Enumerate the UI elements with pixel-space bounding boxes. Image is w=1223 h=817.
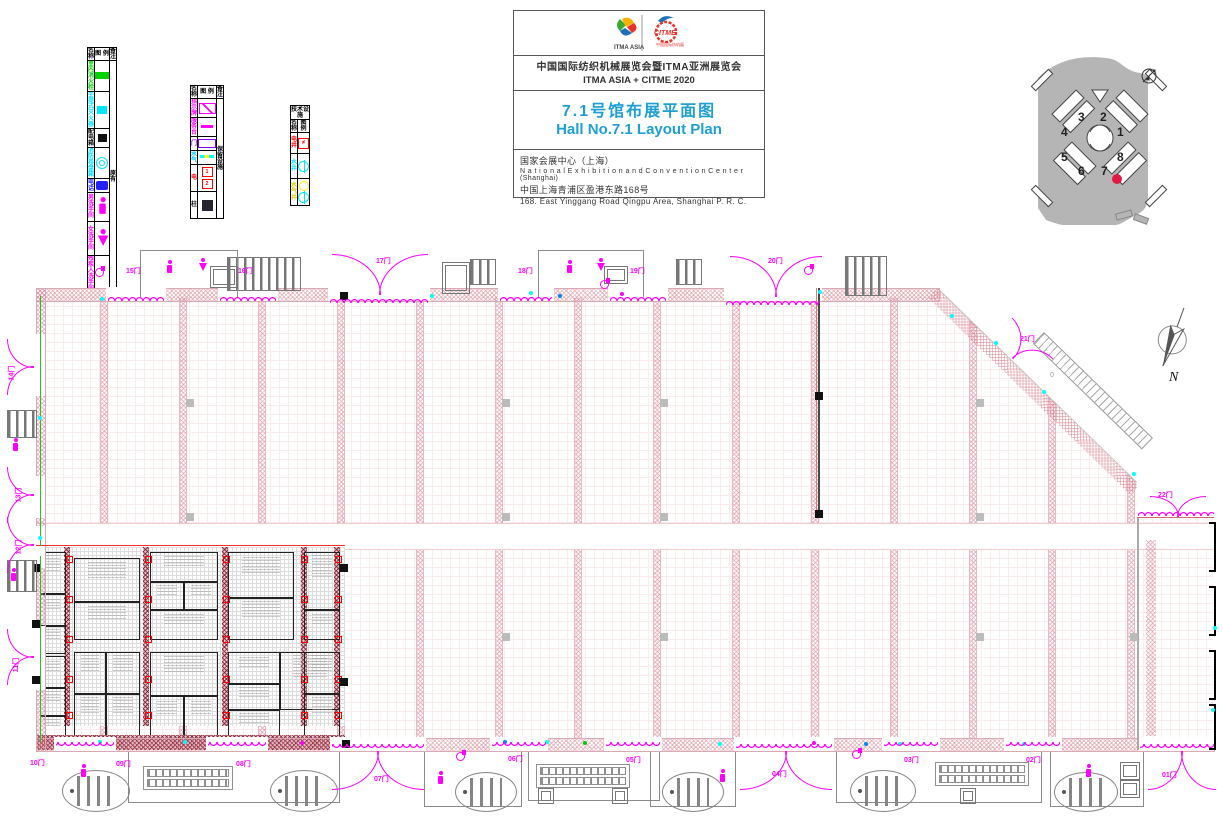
power-marker: [335, 712, 342, 719]
door-leaf-row: [500, 294, 552, 301]
plan-line: [816, 288, 817, 518]
gate-label: 18门: [518, 266, 533, 276]
utility-dot: [718, 742, 722, 746]
door-arc-right: [332, 751, 379, 790]
door-leaf-row: [1006, 742, 1060, 749]
service-trench: [732, 298, 740, 738]
revolving-stair: [662, 772, 724, 812]
annex-trench-strip: [1146, 540, 1156, 736]
door-leaf-row: [736, 744, 832, 751]
power-marker: [335, 596, 342, 603]
gate-label: 14门: [6, 366, 16, 381]
booth-outline: [74, 652, 106, 694]
elevator: [1120, 780, 1140, 798]
utility-dot: [864, 742, 868, 746]
booth-outline: [228, 598, 294, 640]
door-arc-right: [7, 339, 34, 368]
utility-dot: [1211, 708, 1215, 712]
accessible-restroom-icon: [852, 748, 862, 759]
service-trench: [1127, 298, 1135, 738]
service-trench: [416, 298, 424, 738]
door-arc-left: [785, 751, 832, 790]
power-marker: [145, 676, 152, 683]
revolving-stair: [270, 770, 338, 812]
staircase: [676, 259, 702, 285]
ramp-marker: 0: [1050, 372, 1054, 379]
booth-outline: [74, 602, 140, 640]
structural-column: [660, 399, 668, 407]
door-leaf-row: [726, 298, 820, 305]
power-marker: [145, 596, 152, 603]
gate-label: 05门: [626, 755, 641, 765]
power-marker: [223, 676, 230, 683]
power-marker: [145, 556, 152, 563]
floor-plan: 0 15门16门17门18门19门20门21门22门10门09门08门07门06…: [0, 0, 1223, 817]
door-arc-left: [1181, 751, 1216, 790]
power-marker: [301, 596, 308, 603]
gate-label: 19门: [630, 266, 645, 276]
utility-dot: [38, 536, 42, 540]
power-marker: [145, 636, 152, 643]
power-marker: [66, 676, 73, 683]
revolving-stair: [455, 772, 517, 812]
mens-restroom-icon: [566, 260, 573, 273]
booth-outline: [106, 694, 140, 736]
door-arc-left: [332, 254, 381, 295]
power-marker: [335, 636, 342, 643]
power-marker: [223, 596, 230, 603]
utility-dot: [1213, 626, 1217, 630]
structural-column: [502, 513, 510, 521]
wall-jamb: [815, 510, 823, 518]
gate-label: 09门: [116, 759, 131, 769]
booth-outline: [184, 696, 218, 736]
structural-column: [502, 633, 510, 641]
power-marker: [223, 556, 230, 563]
door-leaf-row: [884, 742, 938, 749]
revolving-stair: [850, 770, 916, 812]
door-leaf-row: [208, 742, 266, 749]
power-marker: [223, 636, 230, 643]
power-marker: [66, 636, 73, 643]
elevator: [210, 266, 238, 288]
utility-dot: [583, 741, 587, 745]
door-swing-arcs: [332, 752, 424, 790]
door-leaf-row: [108, 294, 164, 301]
layout-plan-page: 名 称图 例备 注室内消火栓原 有手提式灭火器配电箱消防卷盘箱电话男洗手间女洗手…: [0, 0, 1223, 817]
gate-label: 21门: [1020, 334, 1035, 344]
right-wall-segment: [1209, 650, 1216, 700]
structural-column: [976, 633, 984, 641]
gate-label: 11门: [11, 658, 21, 672]
escalator: [935, 762, 1029, 786]
gate-label: 03门: [904, 755, 919, 765]
plan-line: [1137, 517, 1214, 518]
gate-label: 08门: [236, 759, 251, 769]
elevator: [960, 788, 976, 804]
power-marker: [301, 556, 308, 563]
wall-jamb: [340, 564, 348, 572]
door-swing-arcs: [1148, 752, 1216, 790]
wall-jamb: [340, 678, 348, 686]
booth-outline: [184, 582, 218, 610]
revolving-stair: [1054, 772, 1118, 812]
door-leaf-row: [606, 742, 660, 749]
structural-column: [1130, 633, 1138, 641]
elevator: [538, 788, 554, 804]
mens-restroom-icon: [166, 260, 173, 273]
power-marker: [223, 712, 230, 719]
booth-block: [36, 547, 345, 726]
utility-dot: [950, 314, 954, 318]
door-leaf-row: [610, 294, 666, 301]
power-marker: [145, 712, 152, 719]
elevator: [442, 262, 470, 294]
structural-column: [660, 633, 668, 641]
utility-dot: [1132, 472, 1136, 476]
mens-restroom-icon: [437, 771, 444, 784]
accessible-restroom-icon: [456, 750, 466, 761]
power-marker: [301, 712, 308, 719]
utility-dot: [1042, 390, 1046, 394]
power-marker: [301, 676, 308, 683]
gate-label: 20门: [768, 256, 783, 266]
booth-outline: [150, 610, 218, 640]
gate-label: 06门: [508, 754, 523, 764]
gate-label: 02门: [1026, 755, 1041, 765]
north-compass: N: [1145, 298, 1205, 390]
gate-label: 10门: [30, 758, 45, 768]
power-marker: [66, 712, 73, 719]
gate-label: 12门: [13, 540, 23, 555]
gate-label: 13门: [13, 488, 23, 503]
mens-restroom-icon: [719, 769, 726, 782]
womens-restroom-icon: [199, 258, 206, 271]
escalator: [536, 764, 630, 788]
door-arc-right: [1177, 496, 1206, 517]
door-leaf-row: [56, 742, 114, 749]
structural-column: [976, 399, 984, 407]
elevator: [612, 788, 628, 804]
door-arc-left: [377, 751, 424, 790]
north-label: N: [1169, 370, 1178, 386]
plan-line: [818, 288, 820, 518]
wall-jamb: [815, 392, 823, 400]
door-arc-right: [7, 629, 34, 658]
booth-outline: [150, 652, 218, 696]
staircase: [7, 410, 37, 438]
door-leaf-row: [330, 296, 428, 303]
escalator: [143, 766, 233, 790]
service-trench: [890, 298, 898, 738]
wall-jamb: [32, 620, 40, 628]
gate-label: 17门: [376, 256, 391, 266]
staircase: [845, 256, 887, 296]
booth-outline: [228, 710, 280, 736]
mens-restroom-icon: [80, 764, 87, 777]
booth-outline: [150, 582, 184, 610]
power-marker: [301, 636, 308, 643]
structural-column: [660, 513, 668, 521]
structural-column: [976, 513, 984, 521]
plan-line: [40, 556, 41, 742]
power-marker: [335, 556, 342, 563]
structural-column: [502, 399, 510, 407]
service-trench: [574, 298, 582, 738]
power-marker: [66, 596, 73, 603]
staircase: [470, 259, 496, 285]
booth-outline: [74, 694, 106, 736]
elevator: [1120, 762, 1140, 780]
booth-outline: [304, 652, 340, 694]
diagonal-wall-hatch: [928, 288, 1140, 495]
door-leaf-row: [332, 744, 424, 751]
womens-restroom-icon: [597, 258, 604, 271]
booth-outline: [228, 684, 280, 710]
power-marker: [66, 556, 73, 563]
gate-label: 22门: [1158, 490, 1173, 500]
right-wall-segment: [1209, 522, 1216, 572]
door-leaf-row: [492, 742, 546, 749]
plan-line: [40, 296, 41, 546]
lobby-outline: [538, 250, 644, 297]
revolving-stair: [62, 770, 130, 812]
booth-outline: [150, 696, 184, 736]
structural-column: [186, 513, 194, 521]
booth-outline: [228, 652, 280, 684]
door-leaf-row: [220, 294, 276, 301]
gate-label: 16门: [238, 266, 253, 276]
booth-outline: [228, 552, 294, 598]
booth-outline: [106, 652, 140, 694]
gate-label: 07门: [374, 774, 389, 784]
gate-label: 04门: [772, 769, 787, 779]
structural-column: [186, 399, 194, 407]
utility-dot: [558, 294, 562, 298]
utility-dot: [100, 297, 104, 301]
mens-restroom-icon: [1085, 764, 1092, 777]
utility-dot: [183, 740, 187, 744]
mens-restroom-icon: [12, 438, 19, 451]
booth-outline: [74, 558, 140, 602]
gate-label: 15门: [126, 266, 141, 276]
door-leaf-row: [1140, 744, 1214, 751]
plan-line: [36, 545, 345, 546]
utility-dot: [300, 741, 304, 745]
utility-dot: [430, 294, 434, 298]
gate-label: 01门: [1162, 770, 1177, 780]
utility-dot: [38, 416, 42, 420]
booth-outline: [150, 552, 218, 582]
accessible-restroom-icon: [600, 278, 610, 289]
